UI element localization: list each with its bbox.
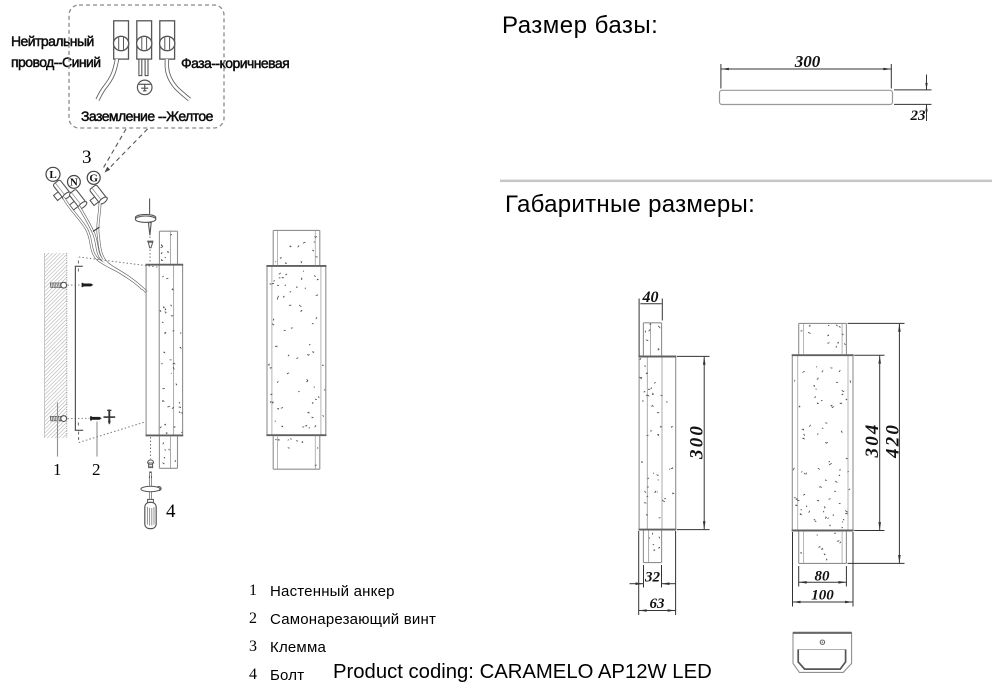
svg-text:304: 304 xyxy=(862,422,883,458)
svg-text:300: 300 xyxy=(794,52,821,71)
svg-text:300: 300 xyxy=(687,424,708,460)
svg-text:80: 80 xyxy=(815,569,831,585)
svg-text:L: L xyxy=(49,169,56,181)
svg-text:N: N xyxy=(70,177,78,189)
svg-text:23: 23 xyxy=(910,108,927,124)
svg-text:40: 40 xyxy=(642,289,659,306)
svg-text:63: 63 xyxy=(650,596,666,612)
svg-text:100: 100 xyxy=(811,587,834,603)
svg-text:32: 32 xyxy=(644,570,661,586)
svg-text:420: 420 xyxy=(883,423,904,459)
svg-text:G: G xyxy=(89,172,98,184)
